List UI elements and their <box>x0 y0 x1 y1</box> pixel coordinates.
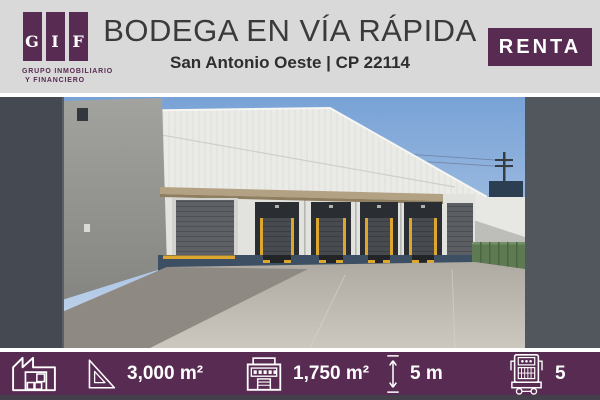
foreground-wall-right <box>525 97 600 348</box>
warehouse-photo-illustration <box>0 97 600 348</box>
wall-window <box>77 108 88 121</box>
logo-bar-f: F <box>69 12 88 61</box>
loading-dock <box>255 202 299 263</box>
logo-tagline-2: Y FINANCIERO <box>22 77 88 84</box>
stat-land-area: 3,000 m² <box>86 352 203 395</box>
loading-dock <box>404 202 442 263</box>
page-subtitle: San Antonio Oeste | CP 22114 <box>95 53 485 73</box>
gif-logo-bars: G I F <box>22 12 88 61</box>
stat-height-value: 5 m <box>410 363 443 385</box>
stat-land-area-value: 3,000 m² <box>127 363 203 385</box>
stat-height: 5 m <box>386 352 443 395</box>
concrete-wall <box>62 98 167 300</box>
truck-icon <box>508 353 545 395</box>
loading-dock <box>311 202 351 263</box>
stat-docks-value: 5 <box>555 363 566 385</box>
set-square-icon <box>86 356 117 392</box>
stats-bar: 3,000 m² 1,750 m² <box>0 352 600 400</box>
right-roller-door <box>447 203 473 255</box>
logo-bar-i: I <box>46 12 65 61</box>
stat-built-area-value: 1,750 m² <box>293 363 369 385</box>
warehouse-front-icon <box>245 355 283 392</box>
property-photo <box>0 97 600 348</box>
foreground-wall-left <box>0 97 64 348</box>
stat-factory <box>10 352 68 395</box>
gif-logo: G I F GRUPO INMOBILIARIO Y FINANCIERO <box>22 12 88 84</box>
factory-icon <box>10 355 58 393</box>
page-title: BODEGA EN VÍA RÁPIDA <box>95 13 485 49</box>
ramp-door <box>172 198 238 255</box>
logo-bar-g: G <box>23 12 42 61</box>
renta-badge: RENTA <box>488 28 592 66</box>
rooftop-unit <box>489 181 523 198</box>
logo-tagline-1: GRUPO INMOBILIARIO <box>22 68 88 75</box>
listing-card: G I F GRUPO INMOBILIARIO Y FINANCIERO BO… <box>0 0 600 400</box>
height-arrow-icon <box>386 354 400 394</box>
header: G I F GRUPO INMOBILIARIO Y FINANCIERO BO… <box>0 0 600 93</box>
stat-docks: 5 <box>508 352 566 395</box>
stat-built-area: 1,750 m² <box>245 352 369 395</box>
title-block: BODEGA EN VÍA RÁPIDA San Antonio Oeste |… <box>95 13 485 73</box>
loading-dock <box>360 202 398 263</box>
